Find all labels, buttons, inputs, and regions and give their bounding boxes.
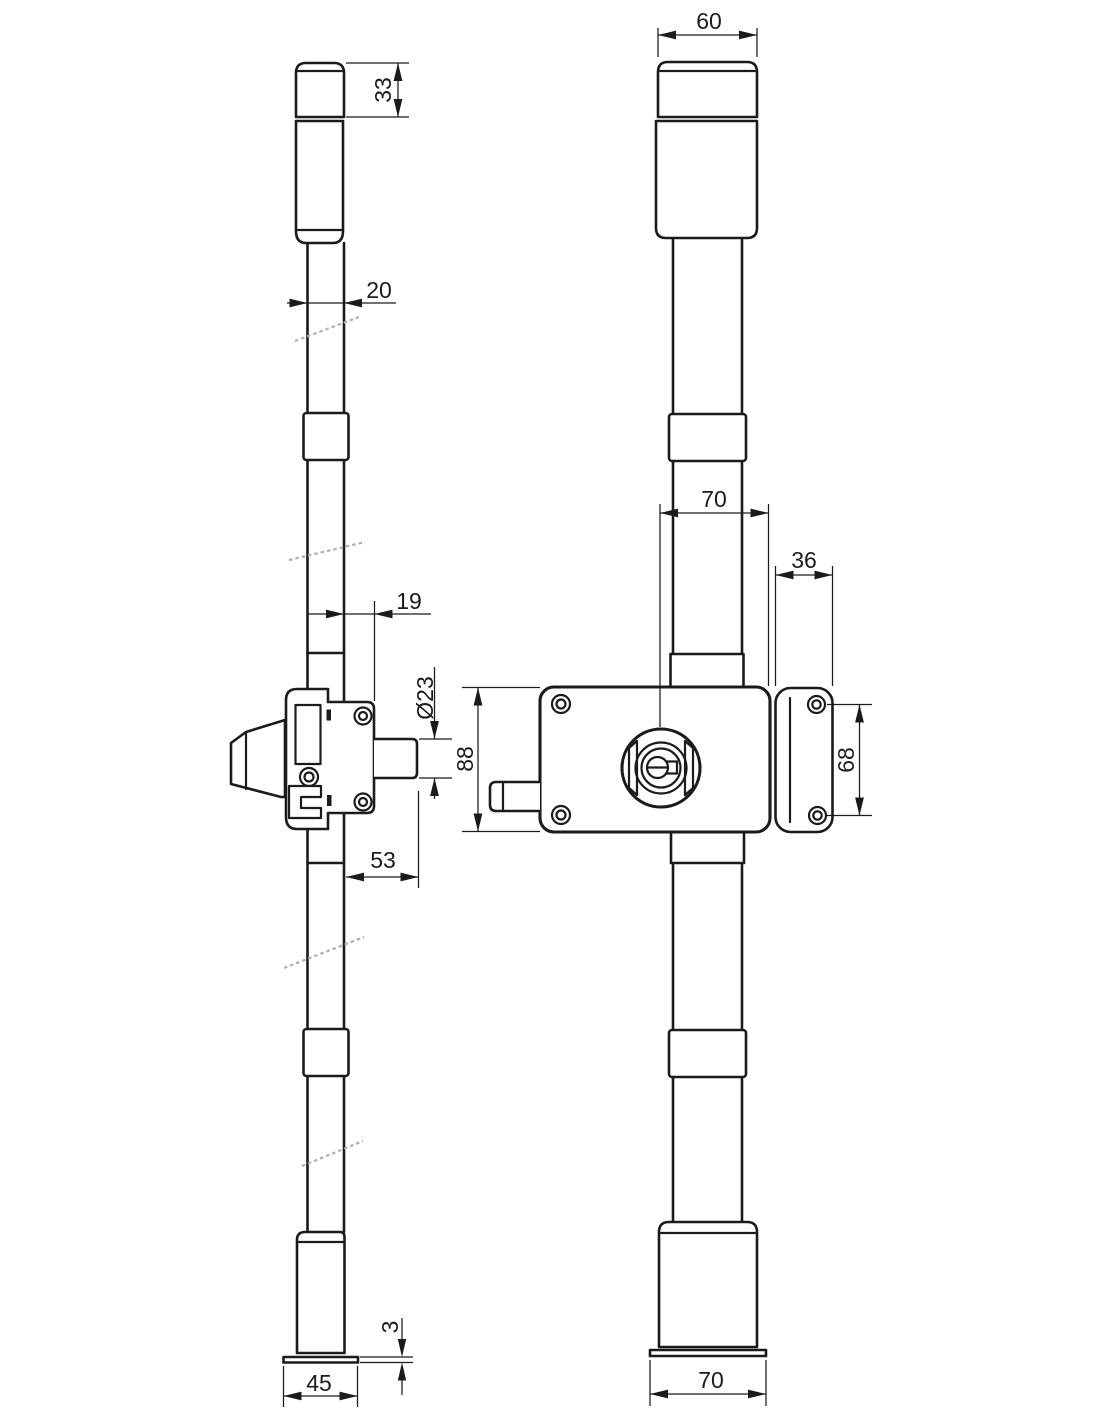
- dim-side-cylinder-diameter: Ø23: [412, 667, 452, 799]
- dim-front-cap-width: 60: [658, 8, 757, 57]
- side-upper-sleeve: [296, 121, 343, 243]
- drawing-page: 33 20 19 Ø23: [0, 0, 1100, 1422]
- front-upper-sleeve: [656, 121, 757, 238]
- side-tick-bottom: [327, 795, 332, 806]
- dim-side-cap-height: 33: [346, 63, 409, 117]
- dim-label-70-top: 70: [701, 486, 727, 512]
- dim-front-foot-width: 70: [650, 1360, 766, 1406]
- front-view: [490, 62, 833, 1356]
- side-view: [231, 63, 417, 1363]
- dim-label-68: 68: [833, 747, 859, 773]
- front-lock-case: [540, 687, 770, 832]
- side-foot-plate: [284, 1357, 359, 1363]
- side-guide-sleeve-upper: [304, 413, 349, 460]
- break-line-3: [284, 937, 364, 968]
- dim-label-20: 20: [366, 277, 392, 303]
- side-tick-top: [327, 710, 332, 721]
- break-line-1: [295, 317, 359, 341]
- technical-drawing-canvas: 33 20 19 Ø23: [0, 0, 1100, 1422]
- side-latch-bolt: [231, 720, 285, 797]
- side-guide-sleeve-lower: [304, 1029, 349, 1076]
- dim-label-45: 45: [306, 1370, 332, 1396]
- dim-label-53: 53: [370, 847, 396, 873]
- front-deadbolt: [490, 782, 540, 811]
- dim-front-striker-width: 36: [776, 547, 833, 686]
- dim-label-3: 3: [377, 1321, 403, 1334]
- front-collar-lower: [669, 1030, 746, 1077]
- side-cylinder-stub: [374, 739, 417, 778]
- front-collar-upper: [669, 414, 746, 461]
- break-line-2: [289, 542, 365, 560]
- dim-side-plate-thickness: 3: [360, 1318, 413, 1395]
- dim-label-60: 60: [696, 8, 722, 34]
- side-bottom-sleeve: [297, 1232, 345, 1353]
- front-collar-below-case: [671, 832, 744, 863]
- dim-label-88: 88: [452, 746, 478, 772]
- dim-label-33: 33: [370, 77, 396, 103]
- front-collar-above-case: [671, 654, 744, 688]
- dim-side-rod-width: 20: [287, 277, 396, 307]
- dim-label-19: 19: [396, 588, 422, 614]
- front-bottom-sleeve: [659, 1222, 757, 1347]
- dim-label-70-bottom: 70: [698, 1367, 724, 1393]
- dim-label-36: 36: [791, 547, 817, 573]
- side-case-slot: [296, 705, 321, 764]
- front-foot-plate: [650, 1350, 766, 1356]
- break-line-4: [302, 1141, 363, 1166]
- dim-side-foot-width: 45: [284, 1366, 358, 1407]
- dim-label-d23: Ø23: [412, 676, 438, 719]
